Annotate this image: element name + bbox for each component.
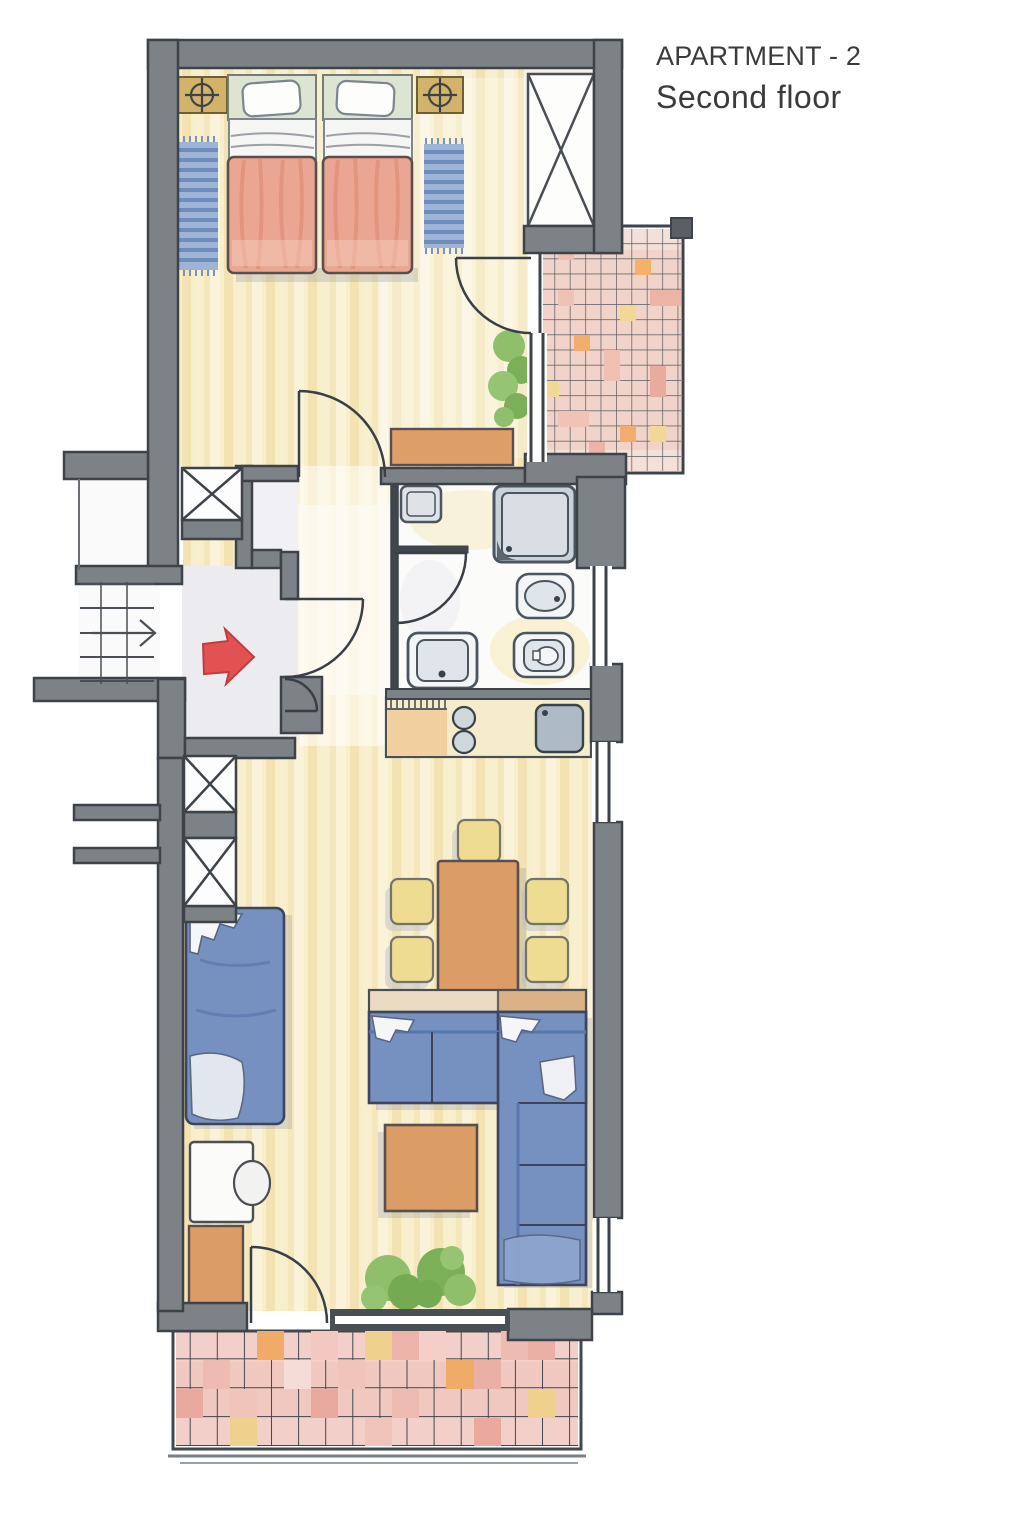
svg-text:Second floor: Second floor [656, 79, 842, 115]
svg-text:APARTMENT - 2: APARTMENT - 2 [656, 41, 861, 71]
